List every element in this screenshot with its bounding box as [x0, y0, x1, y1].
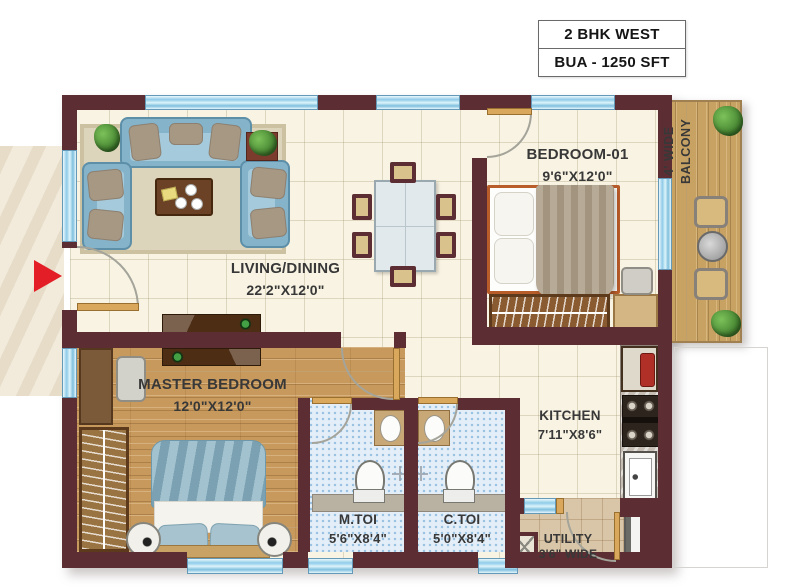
toilet-tank [443, 489, 475, 503]
blanket [536, 185, 614, 297]
dining-chair [390, 162, 416, 183]
balcony-chair [694, 268, 728, 300]
room-name: UTILITY [522, 531, 614, 547]
plant-icon [94, 124, 120, 152]
room-label-balcony: 4' WIDE BALCONY [661, 104, 697, 198]
sofa-cushion [169, 123, 203, 145]
window [62, 348, 77, 398]
room-name: BALCONY [678, 104, 695, 198]
plant-icon [713, 106, 743, 136]
sofa-top [120, 117, 252, 168]
wall-segment [283, 552, 308, 568]
wall-segment [472, 158, 487, 332]
window [145, 95, 318, 110]
stove [622, 395, 659, 447]
dining-chair [352, 194, 372, 220]
sink-basin [629, 458, 652, 496]
room-label-master: MASTER BEDROOM 12'0"X12'0" [105, 374, 320, 416]
toilet-tank [353, 489, 385, 503]
sofa-cushion [87, 208, 125, 241]
wall-segment [62, 552, 187, 568]
fridge-handle [640, 353, 655, 387]
terrace-outline [674, 347, 768, 568]
pillow [494, 238, 534, 284]
balcony-chair [694, 196, 728, 228]
door-jamb [556, 498, 564, 514]
room-name: LIVING/DINING [193, 258, 378, 280]
door-leaf [487, 108, 532, 115]
room-label-kitchen: KITCHEN 7'11"X8'6" [518, 406, 622, 444]
wall-segment [62, 242, 77, 248]
balcony-round-table [697, 231, 728, 262]
dining-chair [390, 266, 416, 287]
wall-segment [62, 398, 77, 568]
window [376, 95, 460, 110]
window [524, 498, 556, 514]
basin-bowl [380, 415, 401, 442]
floor-plan: LIVING/DINING 22'2"X12'0" BEDROOM-01 9'6… [0, 0, 800, 587]
bed-bedroom01 [487, 185, 620, 294]
sofa-cushion [250, 166, 288, 199]
plan-title-line2: BUA - 1250 SFT [539, 48, 685, 76]
door-leaf [77, 303, 139, 311]
bed-duvet [151, 440, 266, 508]
chair [621, 267, 653, 295]
door-leaf [393, 348, 400, 400]
plan-title-box: 2 BHK WEST BUA - 1250 SFT [538, 20, 686, 77]
window [531, 95, 615, 110]
door-leaf [614, 512, 620, 560]
room-size: 5'0"X8'4" [414, 530, 510, 549]
tv-console-living [162, 314, 261, 334]
room-name: KITCHEN [518, 406, 622, 426]
plate [185, 184, 197, 196]
wall-segment [62, 95, 77, 150]
room-label-utility: UTILITY 3'6" WIDE [522, 531, 614, 563]
plant-icon [711, 310, 741, 337]
tv-console-bedroom [162, 348, 261, 366]
window [62, 150, 77, 242]
wall-segment [640, 514, 672, 568]
plant-icon [249, 130, 277, 156]
room-size: 3'6" WIDE [522, 547, 614, 563]
room-label-living: LIVING/DINING 22'2"X12'0" [193, 258, 378, 300]
pillow [494, 192, 534, 236]
wardrobe-master [79, 427, 129, 552]
plate [175, 197, 187, 209]
room-size: 9'6"X12'0" [495, 166, 660, 186]
wall-segment [298, 398, 310, 552]
room-label-ctoi: C.TOI 5'0"X8'4" [414, 510, 510, 548]
dining-chair [436, 232, 456, 258]
room-size: 7'11"X8'6" [518, 426, 622, 445]
fridge [621, 346, 658, 392]
room-name: C.TOI [414, 510, 510, 530]
room-name: M.TOI [312, 510, 404, 530]
wall-segment [62, 332, 341, 348]
dresser-bedroom01 [613, 294, 658, 330]
plan-title-line1: 2 BHK WEST [539, 21, 685, 48]
wardrobe-bedroom01 [489, 294, 610, 330]
window [187, 558, 283, 574]
room-label-mtoi: M.TOI 5'6"X8'4" [312, 510, 404, 548]
sofa-cushion [128, 122, 162, 161]
wall-segment [318, 95, 376, 110]
dining-chair [436, 194, 456, 220]
dining-chair [352, 232, 372, 258]
coffee-table [155, 178, 213, 216]
entry-arrow-icon [34, 260, 62, 292]
room-name: MASTER BEDROOM [105, 374, 320, 396]
door-leaf [418, 397, 458, 404]
sofa-cushion [208, 122, 242, 161]
room-label-bedroom01: BEDROOM-01 9'6"X12'0" [495, 144, 660, 186]
wall-segment [353, 552, 478, 568]
dining-table [374, 180, 436, 272]
sofa-right [240, 160, 290, 248]
plate [191, 198, 203, 210]
room-name: BEDROOM-01 [495, 144, 660, 166]
sofa-cushion [87, 168, 125, 201]
room-size: 12'0"X12'0" [105, 396, 320, 416]
room-size: 22'2"X12'0" [193, 280, 378, 300]
wall-segment [394, 332, 406, 348]
room-name: 4' WIDE [661, 104, 678, 198]
room-size: 5'6"X8'4" [312, 530, 404, 549]
window [308, 558, 353, 574]
washbasin [374, 410, 406, 446]
sofa-left [82, 162, 132, 250]
sofa-cushion [250, 206, 288, 239]
kitchen-sink [623, 451, 657, 501]
wall-segment [472, 327, 672, 345]
